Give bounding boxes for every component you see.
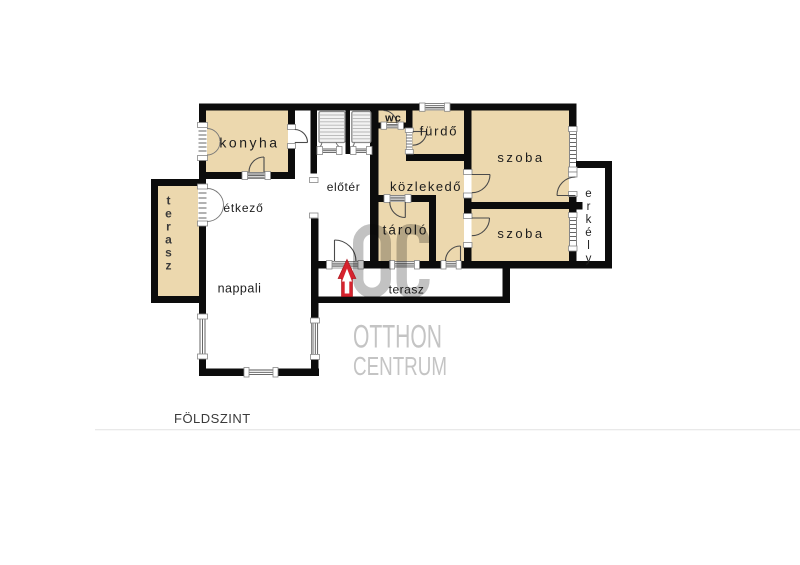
svg-text:előtér: előtér	[327, 180, 361, 194]
svg-text:e: e	[585, 188, 591, 200]
svg-text:a: a	[165, 233, 172, 247]
svg-text:konyha: konyha	[219, 135, 279, 151]
svg-text:é: é	[585, 227, 591, 239]
svg-text:CENTRUM: CENTRUM	[353, 351, 447, 381]
svg-text:közlekedő: közlekedő	[390, 179, 462, 194]
svg-text:szoba: szoba	[497, 150, 544, 165]
svg-text:OTTHON: OTTHON	[353, 319, 442, 355]
svg-text:nappali: nappali	[218, 282, 262, 296]
svg-text:y: y	[586, 253, 592, 265]
svg-text:FÖLDSZINT: FÖLDSZINT	[174, 411, 251, 426]
svg-text:r: r	[166, 220, 171, 234]
svg-text:l: l	[587, 240, 590, 252]
svg-text:étkező: étkező	[223, 201, 263, 215]
svg-text:s: s	[165, 246, 172, 260]
svg-text:k: k	[586, 214, 592, 226]
svg-text:fürdő: fürdő	[420, 124, 459, 139]
svg-text:e: e	[165, 207, 172, 221]
svg-text:wc: wc	[384, 113, 402, 125]
svg-text:z: z	[166, 259, 172, 273]
svg-text:szoba: szoba	[497, 226, 544, 241]
svg-text:t: t	[167, 194, 171, 208]
svg-text:r: r	[587, 201, 591, 213]
